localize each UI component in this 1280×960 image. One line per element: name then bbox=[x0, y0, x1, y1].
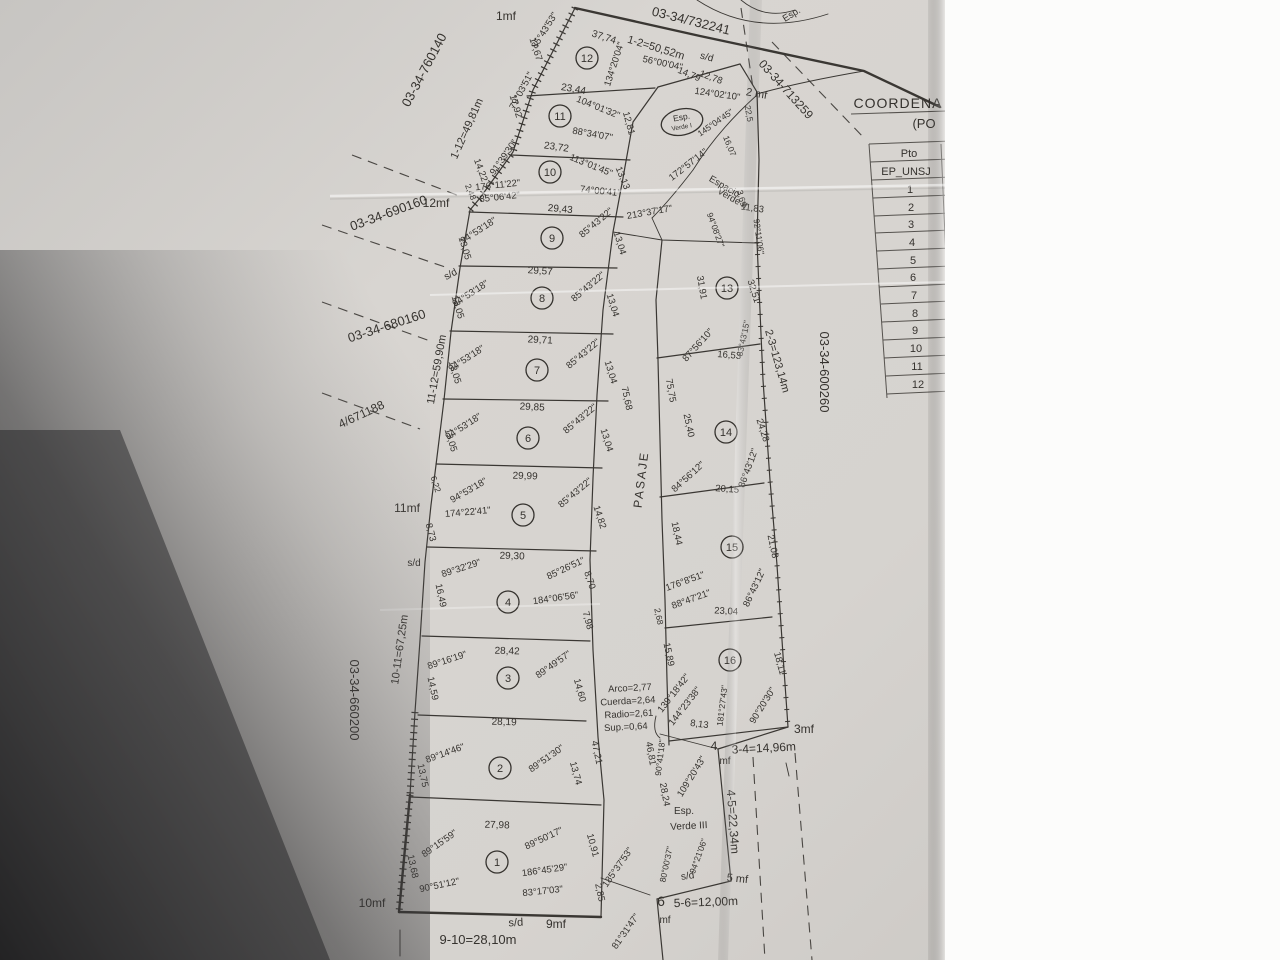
lot13-number: 13 bbox=[721, 283, 733, 295]
lot3-top: 28,42 bbox=[494, 646, 520, 658]
table-row-11: 11 bbox=[911, 361, 922, 373]
lot9-top: 29,43 bbox=[547, 203, 573, 216]
table-row-7: 7 bbox=[911, 290, 917, 302]
lot1-top: 27,98 bbox=[484, 820, 510, 832]
segment-label-9-10: 9-10=28,10m bbox=[440, 932, 517, 947]
marker-12mf: 12mf bbox=[423, 196, 450, 210]
marker-6: 6 bbox=[657, 893, 665, 909]
lot10-number: 10 bbox=[544, 167, 556, 179]
lot5-top: 29,99 bbox=[512, 471, 538, 483]
table-row-10: 10 bbox=[910, 343, 922, 355]
lot2-number: 2 bbox=[497, 763, 503, 775]
lot11-number: 11 bbox=[554, 111, 565, 123]
lot12-number: 12 bbox=[581, 53, 593, 65]
table-row-12: 12 bbox=[912, 379, 924, 391]
parcel-id-right: 03-34-600260 bbox=[817, 332, 832, 413]
lot3-number: 3 bbox=[505, 673, 511, 685]
esp-verde3-line1: Esp. bbox=[674, 806, 694, 817]
arc-line1: Arco=2,77 bbox=[608, 682, 652, 695]
esp-verde3-line2: Verde III bbox=[670, 820, 708, 833]
photo-white-edge bbox=[945, 0, 1280, 960]
lot5-number: 5 bbox=[520, 510, 526, 522]
table-header-pto: Pto bbox=[901, 148, 918, 160]
lot13-bottom: 16,53 bbox=[717, 349, 742, 362]
lot6-number: 6 bbox=[525, 433, 531, 445]
lot9-number: 9 bbox=[549, 233, 555, 245]
table-row-4: 4 bbox=[909, 237, 915, 249]
sd-bottom: s/d bbox=[508, 917, 523, 930]
marker-9mf: 9mf bbox=[546, 917, 567, 931]
table-row-5: 5 bbox=[910, 255, 916, 267]
lot4-top: 29,30 bbox=[499, 551, 525, 563]
table-row-2: 2 bbox=[908, 202, 914, 214]
table-row-3: 3 bbox=[908, 219, 914, 231]
arc-line4: Sup.=0,64 bbox=[604, 721, 648, 734]
marker-4: 4 bbox=[711, 739, 718, 753]
marker-1mf: 1mf bbox=[496, 9, 517, 23]
lot7-number: 7 bbox=[534, 365, 540, 377]
paper-right-edge bbox=[928, 0, 945, 960]
lot1-number: 1 bbox=[494, 857, 500, 869]
plan-canvas: 03-34-760140 03-34/732241 03-34-713259 0… bbox=[0, 0, 1280, 960]
lot8-number: 8 bbox=[539, 293, 545, 305]
survey-plan-photo: 03-34-760140 03-34/732241 03-34-713259 0… bbox=[0, 0, 1280, 960]
table-row-9: 9 bbox=[912, 325, 918, 337]
lot2-top: 28,19 bbox=[491, 717, 517, 729]
table-row-0: EP_UNSJ bbox=[881, 166, 931, 178]
lot14-number: 14 bbox=[720, 427, 732, 439]
marker-6mf: mf bbox=[659, 915, 670, 926]
marker-3mf: 3mf bbox=[794, 722, 815, 736]
lot7-top: 29,71 bbox=[527, 334, 553, 346]
table-row-8: 8 bbox=[912, 308, 918, 320]
lot6-top: 29,85 bbox=[519, 401, 545, 413]
lot8-top: 29,57 bbox=[527, 265, 553, 278]
